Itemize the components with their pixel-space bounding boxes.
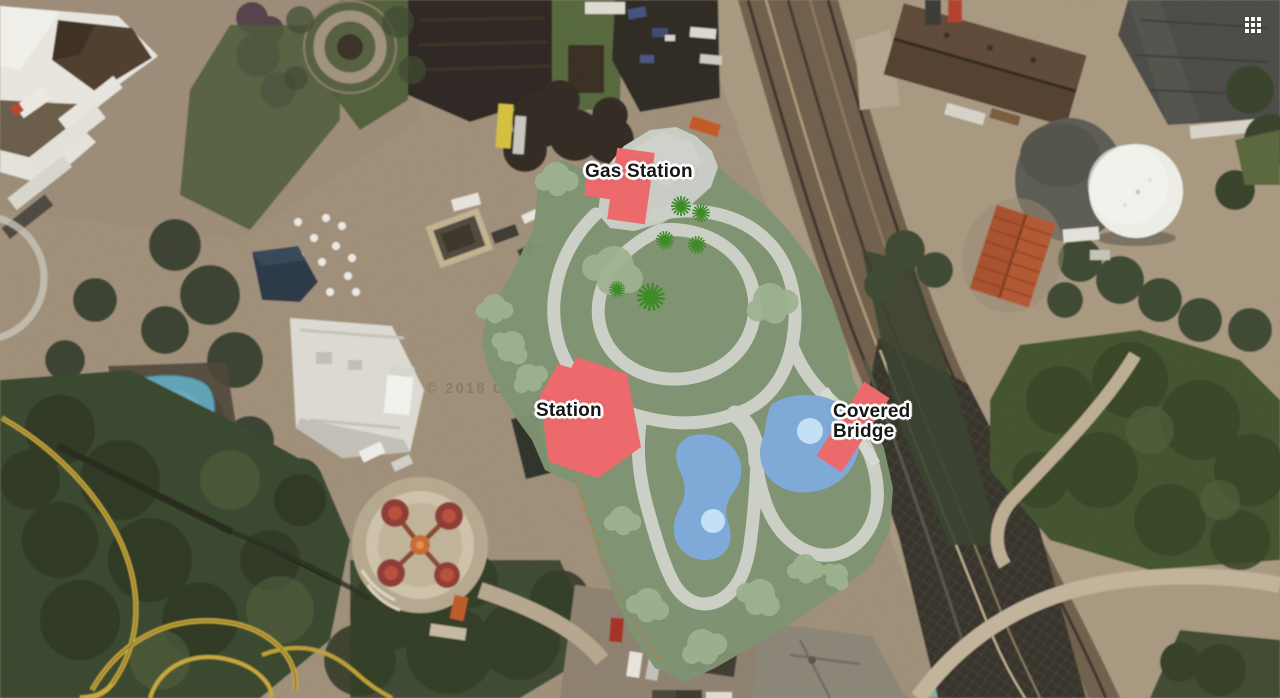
grid-dot (1251, 29, 1255, 33)
pond-fountain-highlight (701, 509, 725, 533)
satellite-basemap: © 2018 Go (0, 0, 1280, 698)
grid-dot (1257, 29, 1261, 33)
overlay-label-station: Station (536, 401, 602, 421)
grid-dot (1257, 17, 1261, 21)
grid-dot (1251, 23, 1255, 27)
overlay-label-gas-station: Gas Station (585, 162, 693, 182)
grid-dot (1245, 29, 1249, 33)
grid-dot (1245, 17, 1249, 21)
overlay-label-covered-bridge: Covered Bridge (833, 402, 910, 442)
covered-bridge-label-line1: Covered (833, 402, 910, 422)
grid-dot (1257, 23, 1261, 27)
map-viewport[interactable]: © 2018 Go (0, 0, 1280, 698)
grid-dot (1251, 17, 1255, 21)
grid-dot (1245, 23, 1249, 27)
apps-grid-icon[interactable] (1245, 17, 1261, 33)
pond-fountain-highlight (797, 418, 823, 444)
covered-bridge-label-line2: Bridge (833, 422, 910, 442)
